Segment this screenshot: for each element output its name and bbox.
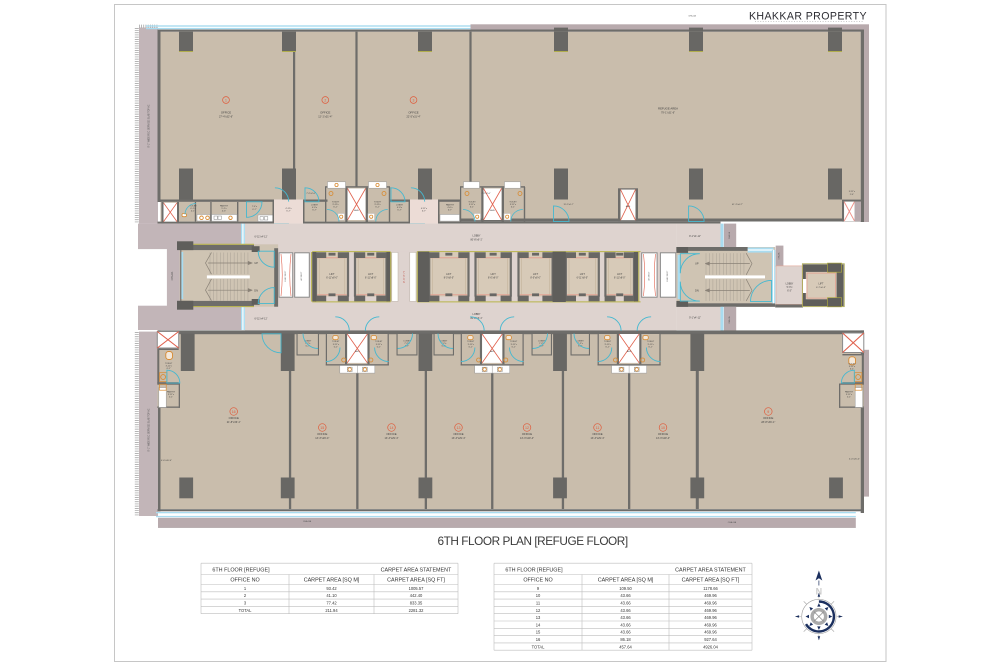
- svg-text:DN: DN: [695, 289, 699, 293]
- svg-text:(4'-11"x9'-7"): (4'-11"x9'-7"): [404, 271, 406, 284]
- svg-text:LIFT: LIFT: [819, 283, 824, 286]
- svg-text:AHS: AHS: [627, 350, 632, 353]
- svg-text:43.66: 43.66: [620, 615, 631, 620]
- svg-text:6'-1": 6'-1": [375, 207, 379, 209]
- svg-text:5'-1": 5'-1": [847, 397, 851, 399]
- svg-text:AHS: AHS: [354, 209, 359, 212]
- svg-text:13'-3"x29'-4": 13'-3"x29'-4": [656, 437, 670, 440]
- svg-text:4926.04: 4926.04: [703, 644, 719, 649]
- svg-text:43.66: 43.66: [620, 601, 631, 606]
- svg-text:43.66: 43.66: [620, 593, 631, 598]
- svg-text:86.18: 86.18: [620, 637, 631, 642]
- svg-text:KHAKKAR PROPERTY: KHAKKAR PROPERTY: [749, 11, 867, 23]
- svg-text:6'-1": 6'-1": [377, 346, 381, 348]
- svg-text:4'-1": 4'-1": [191, 211, 195, 213]
- svg-text:77.42: 77.42: [326, 601, 337, 606]
- svg-text:CHAJJA: CHAJJA: [728, 521, 737, 524]
- svg-text:CARPET AREA [SQ M]: CARPET AREA [SQ M]: [304, 578, 360, 584]
- svg-text:AHS: AHS: [490, 209, 495, 212]
- svg-text:927.64: 927.64: [704, 637, 717, 642]
- svg-text:6'-11"x8'-0": 6'-11"x8'-0": [365, 277, 377, 279]
- svg-text:4'-3": 4'-3": [222, 211, 226, 213]
- svg-text:13'-3"x29'-4": 13'-3"x29'-4": [520, 437, 534, 440]
- svg-text:469.96: 469.96: [704, 593, 717, 598]
- svg-text:1178.66: 1178.66: [703, 586, 718, 591]
- svg-text:6'-7": 6'-7": [312, 210, 316, 212]
- svg-text:5'-3"x: 5'-3"x: [787, 287, 794, 289]
- svg-text:ELEC DUCT: ELEC DUCT: [667, 270, 669, 282]
- svg-text:LIFT: LIFT: [329, 273, 335, 276]
- svg-text:43.66: 43.66: [620, 608, 631, 613]
- svg-text:CHAJJA: CHAJJA: [778, 252, 781, 260]
- svg-text:1: 1: [225, 98, 227, 102]
- svg-text:14: 14: [536, 622, 541, 627]
- svg-text:13: 13: [457, 426, 461, 430]
- svg-text:13'-3"x29'-4": 13'-3"x29'-4": [315, 437, 329, 440]
- svg-text:6'-1": 6'-1": [470, 207, 474, 209]
- svg-text:11: 11: [536, 601, 541, 606]
- svg-text:OFFICE: OFFICE: [320, 110, 330, 114]
- svg-text:8'-0"x8'-0": 8'-0"x8'-0": [530, 277, 540, 279]
- svg-text:OFFICE NO: OFFICE NO: [523, 578, 552, 584]
- svg-text:AHS: AHS: [490, 350, 495, 353]
- svg-text:4'-0"x20'-4": 4'-0"x20'-4": [849, 459, 860, 461]
- svg-text:LOBBY: LOBBY: [786, 284, 794, 286]
- svg-text:6'-1": 6'-1": [511, 207, 515, 209]
- svg-text:21'-8"x36'-1": 21'-8"x36'-1": [227, 421, 241, 424]
- svg-text:8'-1" WIDE RCC SERVICE SLAB TO: 8'-1" WIDE RCC SERVICE SLAB TOP AC: [148, 408, 151, 451]
- svg-text:16: 16: [232, 410, 236, 414]
- svg-text:5'-1": 5'-1": [169, 397, 173, 399]
- svg-text:6'-1": 6'-1": [334, 346, 338, 348]
- svg-text:LOBBY: LOBBY: [473, 313, 481, 316]
- svg-text:13'-3"x29'-4": 13'-3"x29'-4": [452, 437, 466, 440]
- svg-text:CHAJJA: CHAJJA: [728, 316, 731, 324]
- svg-text:833.35: 833.35: [410, 601, 423, 606]
- svg-text:211.94: 211.94: [325, 608, 338, 613]
- svg-text:CARPET AREA STATEMENT: CARPET AREA STATEMENT: [675, 567, 746, 573]
- svg-text:CARPET AREA [SQ FT]: CARPET AREA [SQ FT]: [387, 578, 445, 584]
- svg-text:13'-3"x29'-4": 13'-3"x29'-4": [591, 437, 605, 440]
- svg-text:6'-1": 6'-1": [333, 207, 337, 209]
- svg-text:LIFT: LIFT: [368, 273, 374, 276]
- svg-text:6'-1": 6'-1": [512, 346, 516, 348]
- svg-text:12'-1"x31'-4": 12'-1"x31'-4": [318, 116, 332, 119]
- svg-text:43.66: 43.66: [620, 622, 631, 627]
- svg-text:CHAJJA: CHAJJA: [303, 520, 312, 523]
- svg-text:19'-2"x6'-7": 19'-2"x6'-7": [564, 204, 574, 206]
- svg-text:469.96: 469.96: [704, 615, 717, 620]
- svg-text:10: 10: [661, 426, 665, 430]
- svg-text:OFFICE: OFFICE: [317, 432, 327, 436]
- svg-text:16: 16: [536, 637, 541, 642]
- svg-text:8'-1" WIDE RCC SERVICE SLAB TO: 8'-1" WIDE RCC SERVICE SLAB TOP AC: [148, 104, 151, 147]
- svg-text:79'-1"x31'-6": 79'-1"x31'-6": [661, 112, 675, 115]
- svg-text:3'-11"x: 3'-11"x: [849, 191, 856, 193]
- svg-text:469.96: 469.96: [704, 608, 717, 613]
- svg-text:UP: UP: [695, 262, 699, 266]
- svg-text:CARPET AREA [SQ M]: CARPET AREA [SQ M]: [598, 578, 654, 584]
- svg-text:27'-4"x32'-6": 27'-4"x32'-6": [219, 116, 233, 119]
- svg-text:41.10: 41.10: [326, 593, 337, 598]
- svg-text:15: 15: [320, 426, 324, 430]
- svg-text:9: 9: [767, 410, 769, 414]
- svg-text:6TH FLOOR [REFUGE]: 6TH FLOOR [REFUGE]: [505, 567, 563, 573]
- svg-text:2'-0": 2'-0": [850, 194, 854, 196]
- svg-text:LIFT: LIFT: [533, 273, 539, 276]
- svg-text:2: 2: [324, 98, 326, 102]
- svg-text:41'-2"x6'-7": 41'-2"x6'-7": [732, 204, 743, 206]
- svg-text:469.96: 469.96: [704, 601, 717, 606]
- svg-text:12: 12: [525, 426, 529, 430]
- svg-text:6'-7": 6'-7": [286, 211, 290, 213]
- svg-text:6'-7": 6'-7": [397, 210, 401, 212]
- svg-text:CHAJJA: CHAJJA: [688, 15, 696, 18]
- svg-text:93.42: 93.42: [326, 586, 337, 591]
- svg-text:TOTAL: TOTAL: [239, 608, 253, 613]
- svg-text:469.96: 469.96: [704, 622, 717, 627]
- svg-text:10: 10: [536, 593, 541, 598]
- svg-text:43.66: 43.66: [620, 630, 631, 635]
- svg-text:OFFICE: OFFICE: [522, 432, 532, 436]
- svg-text:OFFICE: OFFICE: [408, 110, 418, 114]
- svg-text:22'-5"x31'-4": 22'-5"x31'-4": [407, 116, 421, 119]
- svg-text:469.96: 469.96: [704, 630, 717, 635]
- svg-text:LIFT: LIFT: [491, 273, 497, 276]
- svg-text:PANTRY: PANTRY: [167, 391, 176, 394]
- svg-text:12: 12: [536, 608, 541, 613]
- svg-text:7'-2"x2'-0": 7'-2"x2'-0": [481, 193, 491, 195]
- svg-text:7'-2"x2'-0": 7'-2"x2'-0": [306, 193, 316, 195]
- svg-text:A/C DUCT: A/C DUCT: [648, 271, 651, 281]
- svg-text:UP: UP: [254, 261, 258, 265]
- svg-text:9'-1"x4'-11": 9'-1"x4'-11": [689, 316, 701, 319]
- svg-text:28'-8"x36'-1": 28'-8"x36'-1": [761, 421, 775, 424]
- svg-text:2281.32: 2281.32: [409, 608, 425, 613]
- svg-text:CARPET AREA [SQ FT]: CARPET AREA [SQ FT]: [682, 578, 740, 584]
- svg-text:6TH FLOOR PLAN [REFUGE FLOOR]: 6TH FLOOR PLAN [REFUGE FLOOR]: [438, 534, 628, 548]
- svg-text:6'-3": 6'-3": [787, 291, 792, 293]
- svg-text:6'-11"x4'-11": 6'-11"x4'-11": [254, 235, 267, 238]
- svg-text:AHS: AHS: [626, 205, 631, 208]
- svg-text:80'-8"x6'-1": 80'-8"x6'-1": [470, 238, 482, 241]
- svg-text:3: 3: [413, 98, 415, 102]
- svg-text:OFFICE NO: OFFICE NO: [230, 578, 259, 584]
- svg-text:LOBBY: LOBBY: [473, 234, 481, 237]
- svg-text:6TH FLOOR [REFUGE]: 6TH FLOOR [REFUGE]: [212, 567, 270, 573]
- svg-text:6'-7": 6'-7": [422, 211, 426, 213]
- svg-text:OFFICE: OFFICE: [221, 110, 231, 114]
- svg-text:442.40: 442.40: [410, 593, 423, 598]
- svg-text:1005.57: 1005.57: [409, 586, 425, 591]
- svg-text:CHAJJA: CHAJJA: [171, 271, 174, 280]
- svg-text:OFFICE: OFFICE: [592, 432, 602, 436]
- svg-text:15: 15: [536, 630, 541, 635]
- svg-text:457.64: 457.64: [619, 644, 632, 649]
- svg-text:6'-7": 6'-7": [448, 210, 452, 212]
- svg-text:OFFICE: OFFICE: [763, 416, 773, 420]
- svg-text:PANTRY: PANTRY: [845, 391, 854, 394]
- svg-text:13: 13: [536, 615, 541, 620]
- svg-text:6'-7": 6'-7": [252, 209, 256, 211]
- svg-text:OFFICE: OFFICE: [658, 432, 668, 436]
- svg-text:6'-11"x8'-0": 6'-11"x8'-0": [614, 277, 626, 279]
- svg-text:OFFICE: OFFICE: [229, 416, 239, 420]
- svg-text:CARPET AREA STATEMENT: CARPET AREA STATEMENT: [381, 567, 452, 573]
- svg-text:ELEC DUCT: ELEC DUCT: [285, 270, 287, 282]
- svg-text:14: 14: [390, 426, 394, 430]
- svg-text:6'-7"x6'-3": 6'-7"x6'-3": [816, 287, 826, 289]
- svg-text:REFUGE AREA: REFUGE AREA: [658, 106, 678, 110]
- svg-text:6'-11"x8'-0": 6'-11"x8'-0": [577, 277, 589, 279]
- svg-text:4'-6"x20'-4": 4'-6"x20'-4": [161, 460, 172, 462]
- svg-text:LIFT: LIFT: [617, 273, 623, 276]
- svg-text:LIFT: LIFT: [446, 273, 452, 276]
- svg-text:11: 11: [596, 426, 600, 430]
- svg-text:A/C DUCT: A/C DUCT: [300, 271, 303, 281]
- svg-text:6'-11"x4'-11": 6'-11"x4'-11": [254, 318, 267, 321]
- svg-text:OFFICE: OFFICE: [453, 432, 463, 436]
- svg-text:9'-1"x4'-11": 9'-1"x4'-11": [689, 235, 701, 238]
- svg-text:OFFICE: OFFICE: [386, 432, 396, 436]
- svg-text:LIFT: LIFT: [580, 273, 586, 276]
- svg-text:AHS: AHS: [355, 350, 360, 353]
- svg-text:DN: DN: [254, 288, 258, 292]
- svg-text:109.50: 109.50: [619, 586, 632, 591]
- svg-text:8'-0"x8'-0": 8'-0"x8'-0": [488, 277, 498, 279]
- svg-text:8'-0"x8'-0": 8'-0"x8'-0": [444, 277, 454, 279]
- svg-text:6'-1": 6'-1": [469, 346, 473, 348]
- svg-text:TOTAL: TOTAL: [532, 644, 546, 649]
- svg-text:6'-1": 6'-1": [606, 346, 610, 348]
- svg-text:6'-11"x8'-0": 6'-11"x8'-0": [326, 277, 338, 279]
- svg-text:13'-3"x29'-4": 13'-3"x29'-4": [385, 437, 399, 440]
- svg-text:CHAJJA: CHAJJA: [728, 231, 731, 239]
- svg-text:6'-1": 6'-1": [649, 346, 653, 348]
